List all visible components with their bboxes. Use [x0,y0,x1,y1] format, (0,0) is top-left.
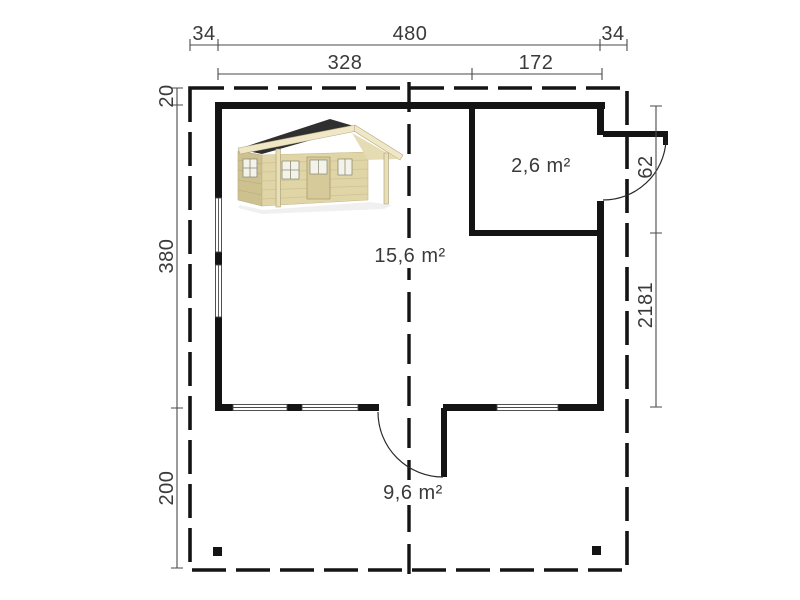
door-bottom [378,408,447,477]
dim-label-overall-width: 480 [393,23,428,45]
wall-partition-horizontal [469,230,604,236]
cabin-gable-board-left [238,125,357,154]
room-label-terrace: 9,6 m² [383,482,443,504]
window-bottom-wall-2 [302,405,358,411]
dim-label-main-width: 328 [328,52,363,74]
window-left-wall-1 [216,198,222,252]
dimension-column-right [650,106,662,407]
dim-label-building-depth: 380 [156,239,178,274]
floor-plan-drawing: 34 480 34 328 172 20 380 200 62 2181 2,6… [0,0,800,600]
cabin-3d-illustration [238,119,403,214]
door-right-leaf [603,131,668,137]
dim-label-right-margin: 34 [601,23,624,45]
windows [216,198,559,411]
wall-right-upper-stub [597,102,604,135]
wall-partition-vertical [469,102,475,236]
floor-plan-canvas: 34 480 34 328 172 20 380 200 62 2181 2,6… [0,0,800,600]
cabin-porch-post-right [384,153,389,204]
terrace-post-right [592,546,601,555]
door-bottom-leaf [441,408,447,477]
dim-label-annex-width: 172 [519,52,554,74]
wall-left [215,102,222,411]
window-bottom-wall-1 [233,405,287,411]
dim-label-right-wall-segment: 2181 [635,282,657,329]
dim-label-terrace-depth: 200 [156,471,178,506]
window-bottom-wall-3 [497,405,558,411]
cabin-porch-post-left [276,149,281,207]
window-left-wall-2 [216,265,222,317]
wall-top [215,102,605,109]
dim-label-door-opening: 62 [635,155,657,178]
dim-label-left-margin: 34 [192,23,215,45]
room-label-annex: 2,6 m² [511,155,571,177]
room-label-main: 15,6 m² [374,245,445,267]
terrace-post-left [213,547,222,556]
dim-label-top-offset: 20 [156,84,178,107]
